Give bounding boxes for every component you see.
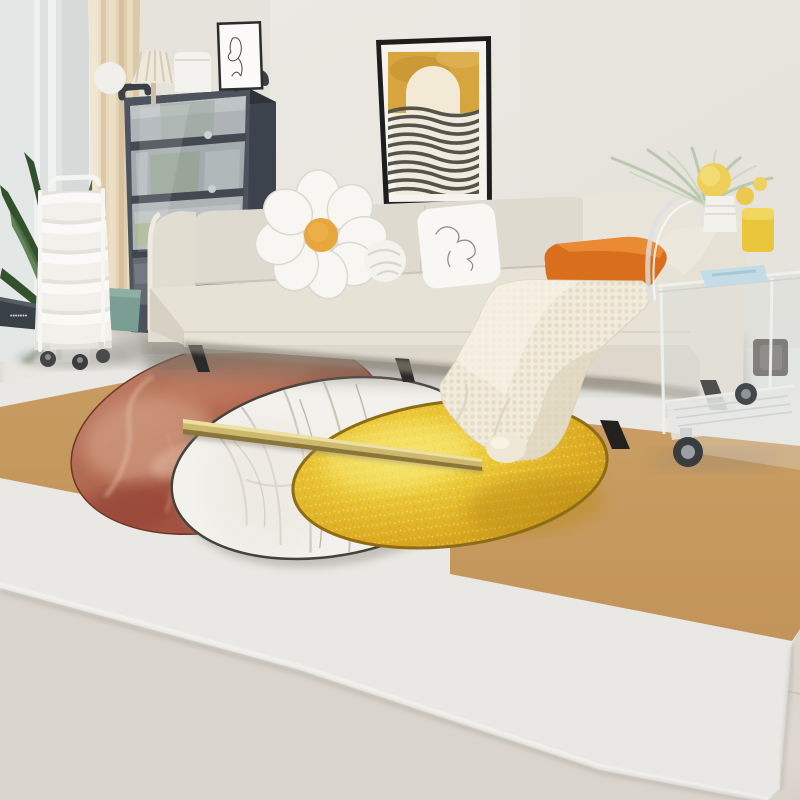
svg-text:•••••••: ••••••• bbox=[10, 313, 28, 320]
